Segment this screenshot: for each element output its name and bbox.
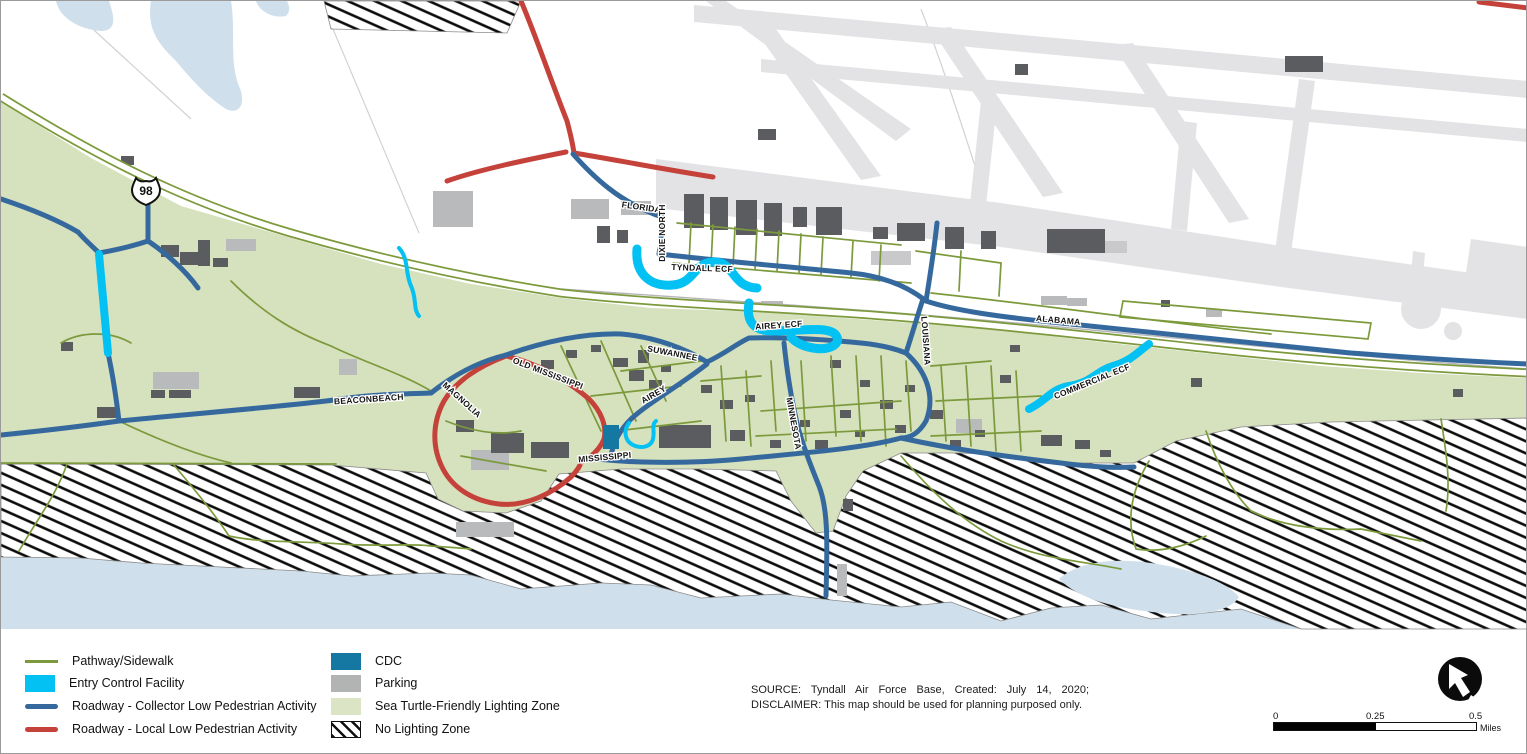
scale-bar-fill [1274,723,1376,730]
legend-label: Parking [375,676,417,690]
legend-label: Entry Control Facility [69,676,184,690]
legend-item-parking: Parking [331,673,417,693]
road-label-dixie-north: DIXIE NORTH [657,204,667,262]
sea-turtle-zone-swatch [331,698,361,715]
legend-item-cdc: CDC [331,651,402,671]
base-map: 98 FLORIDA DIXIE NORTH TYNDALL ECF AIREY… [1,1,1527,631]
us98-shield-number: 98 [139,184,153,198]
no-lighting-zone-swatch [331,721,361,738]
source-line: SOURCE: Tyndall Air Force Base, Created:… [751,683,1089,698]
scale-bar-track [1273,722,1477,731]
legend-item-local: Roadway - Local Low Pedestrian Activity [25,719,297,739]
scale-unit: Miles [1480,723,1501,733]
local-road-swatch [25,727,58,732]
legend-label: No Lighting Zone [375,722,470,736]
legend-item-no-lighting-zone: No Lighting Zone [331,719,470,739]
north-arrow-icon [1437,655,1485,705]
legend-item-pathway: Pathway/Sidewalk [25,651,173,671]
legend-label: Roadway - Collector Low Pedestrian Activ… [72,699,317,713]
scale-bar: 0 0.25 0.5 Miles [1273,711,1488,731]
parking-swatch [331,675,361,692]
legend-label: Pathway/Sidewalk [72,654,173,668]
legend-label: CDC [375,654,402,668]
scale-mid: 0.25 [1366,711,1385,722]
cdc-area [603,425,619,449]
disclaimer-line: DISCLAIMER: This map should be used for … [751,698,1089,713]
scale-start: 0 [1273,711,1278,722]
legend-item-ecf: Entry Control Facility [25,673,184,693]
map-figure: 98 FLORIDA DIXIE NORTH TYNDALL ECF AIREY… [0,0,1527,754]
collector-road-swatch [25,704,58,709]
scale-end: 0.5 [1469,711,1482,722]
cdc-swatch [331,653,361,670]
legend-label: Roadway - Local Low Pedestrian Activity [72,722,297,736]
legend-item-collector: Roadway - Collector Low Pedestrian Activ… [25,696,317,716]
scale-bar-labels: 0 0.25 0.5 [1273,711,1477,722]
legend-item-sea-turtle-zone: Sea Turtle-Friendly Lighting Zone [331,696,560,716]
ecf-swatch [25,675,55,692]
pathway-swatch [25,660,58,663]
source-note: SOURCE: Tyndall Air Force Base, Created:… [751,683,1089,713]
legend-label: Sea Turtle-Friendly Lighting Zone [375,699,560,713]
